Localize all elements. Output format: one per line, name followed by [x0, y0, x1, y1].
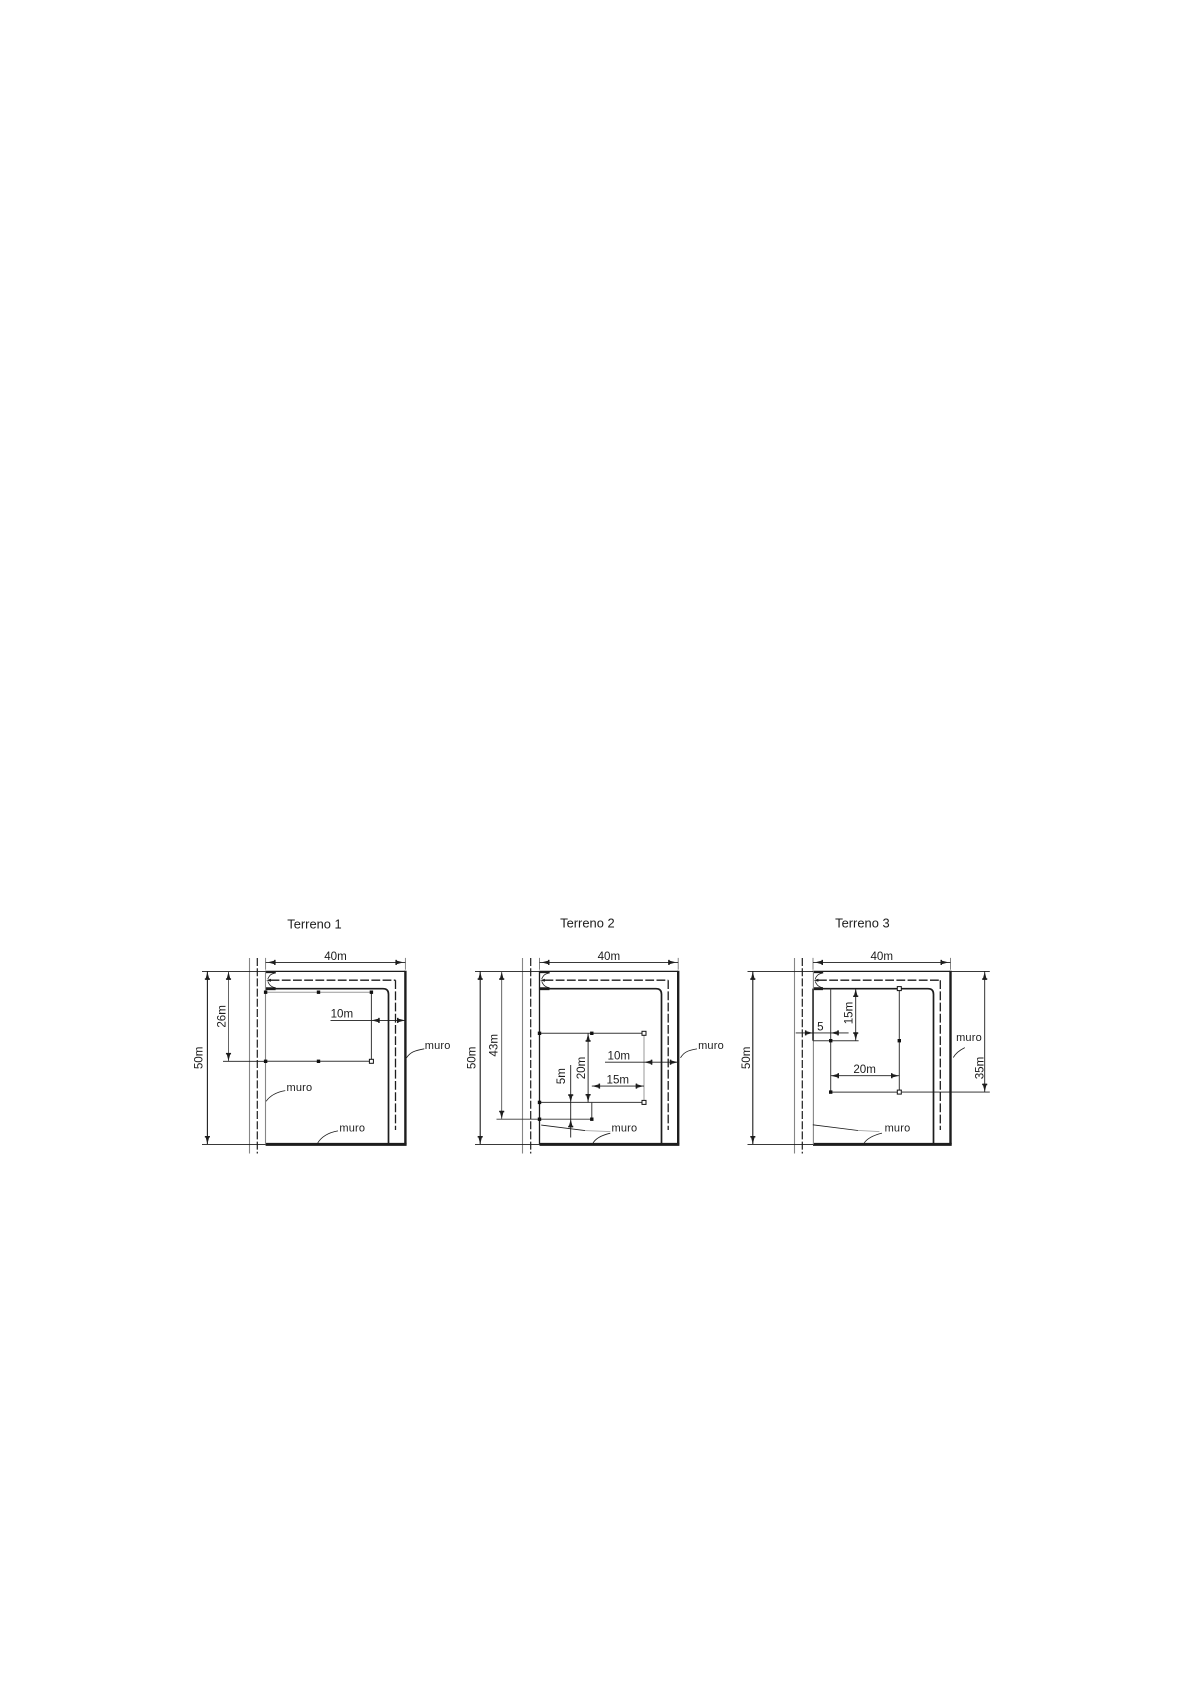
svg-text:50m: 50m: [192, 1047, 205, 1070]
svg-text:10m: 10m: [331, 1008, 354, 1021]
svg-text:muro: muro: [611, 1123, 637, 1135]
svg-text:5: 5: [817, 1020, 823, 1033]
svg-text:Terreno 1: Terreno 1: [287, 916, 341, 931]
svg-text:muro: muro: [885, 1123, 911, 1135]
svg-text:muro: muro: [286, 1082, 312, 1094]
svg-text:40m: 40m: [870, 950, 893, 963]
svg-text:20m: 20m: [575, 1057, 588, 1080]
svg-text:50m: 50m: [740, 1047, 753, 1070]
svg-text:muro: muro: [698, 1040, 724, 1052]
svg-text:15m: 15m: [607, 1073, 630, 1086]
svg-text:15m: 15m: [843, 1002, 856, 1025]
svg-text:20m: 20m: [853, 1063, 876, 1076]
svg-text:10m: 10m: [608, 1050, 631, 1063]
svg-text:muro: muro: [425, 1040, 451, 1052]
svg-text:50m: 50m: [466, 1047, 479, 1070]
svg-text:Terreno 3: Terreno 3: [835, 916, 889, 931]
svg-text:43m: 43m: [488, 1034, 501, 1057]
svg-text:40m: 40m: [324, 950, 347, 963]
svg-text:muro: muro: [956, 1032, 982, 1044]
svg-text:5m: 5m: [555, 1068, 568, 1084]
svg-text:26m: 26m: [215, 1005, 228, 1028]
svg-text:35m: 35m: [973, 1057, 986, 1080]
svg-text:40m: 40m: [598, 950, 621, 963]
svg-text:Terreno 2: Terreno 2: [560, 916, 614, 931]
svg-text:muro: muro: [339, 1122, 365, 1134]
